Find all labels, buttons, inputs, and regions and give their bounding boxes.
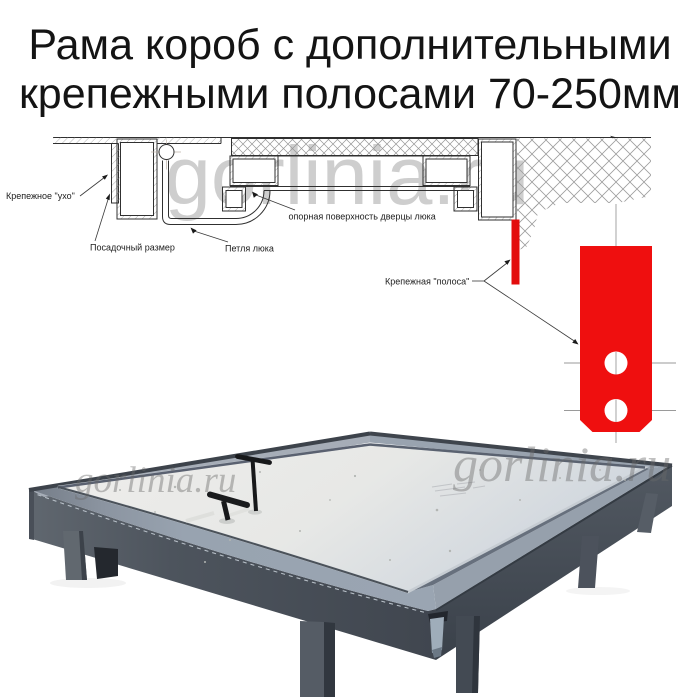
svg-text:Посадочный размер: Посадочный размер: [90, 243, 175, 253]
svg-text:Крепежная "полоса": Крепежная "полоса": [385, 277, 469, 287]
svg-text:Петля люка: Петля люка: [225, 244, 274, 254]
svg-text:gorlinia.ru: gorlinia.ru: [75, 460, 236, 501]
svg-text:крепежными полосами 70-250мм: крепежными полосами 70-250мм: [19, 70, 681, 118]
svg-text:gorlinia.ru: gorlinia.ru: [453, 436, 671, 492]
svg-text:опорная поверхность дверцы люк: опорная поверхность дверцы люка: [289, 212, 436, 222]
svg-text:Рама короб с дополнительными: Рама короб с дополнительными: [28, 21, 671, 69]
svg-text:Крепежное "ухо": Крепежное "ухо": [6, 191, 75, 201]
